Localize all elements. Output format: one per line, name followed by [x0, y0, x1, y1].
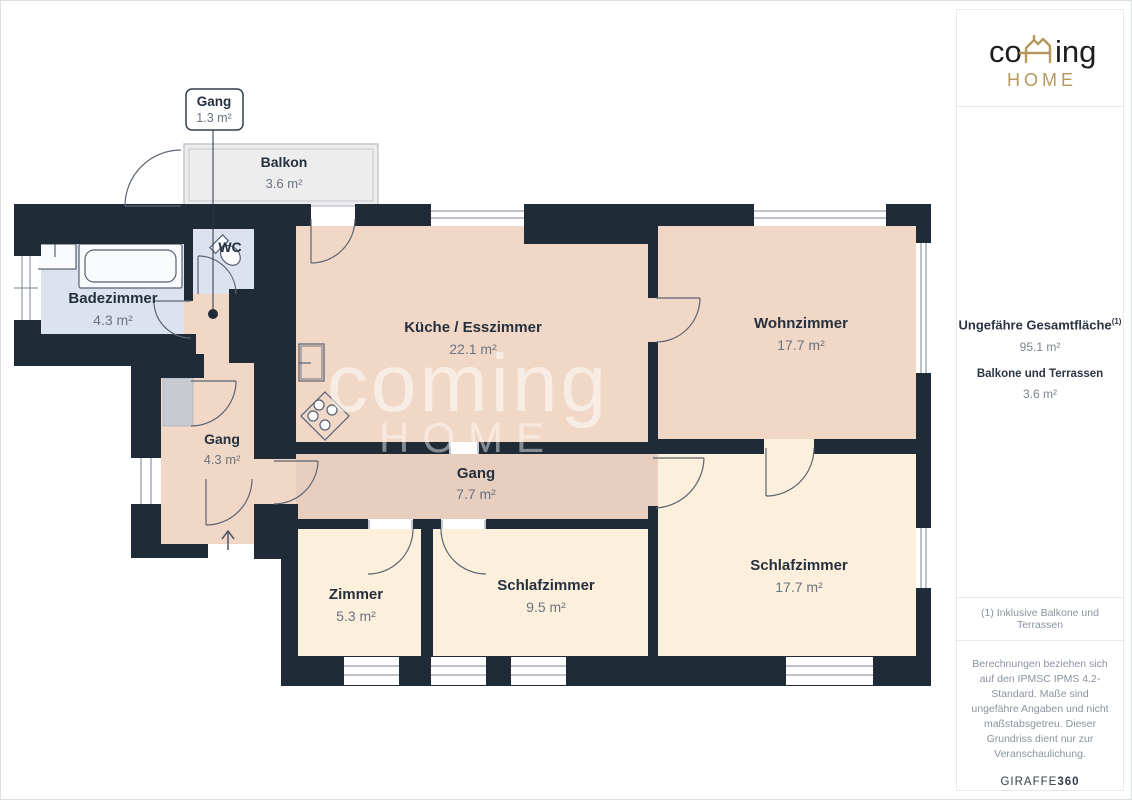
callout-dot — [208, 309, 218, 319]
gang13-label: Gang — [197, 94, 232, 109]
bathtub-icon — [79, 244, 182, 288]
coming-home-logo: co ing HOME — [965, 20, 1115, 96]
wohnzimmer-area: 17.7 m² — [777, 337, 825, 353]
door-gap-gang77-schlafzimmer — [648, 448, 658, 506]
logo-home-text: HOME — [1007, 70, 1077, 90]
door-gap-kueche-wohnzimmer — [648, 298, 658, 342]
floorplan-canvas: coming HOME Balkon 3.6 m² WC Badezimmer … — [0, 0, 1132, 800]
info-sidebar: co ing HOME Ungefähre Gesamtfläche(1) 95… — [956, 9, 1124, 791]
window-bottom-zimmer — [344, 657, 399, 685]
gang13-area: 1.3 m² — [196, 111, 231, 125]
wc-label: WC — [218, 239, 241, 255]
window-badezimmer — [14, 256, 38, 320]
disclaimer: Berechnungen beziehen sich auf den IPMSC… — [957, 641, 1123, 790]
footnote: (1) Inklusive Balkone und Terrassen — [957, 598, 1123, 641]
giraffe360-brand: GIRAFFE360 — [967, 774, 1113, 790]
kueche-area: 22.1 m² — [449, 341, 497, 357]
window-right-wohnzimmer — [916, 243, 931, 373]
floorplan: coming HOME Balkon 3.6 m² WC Badezimmer … — [1, 1, 956, 800]
zimmer-area: 5.3 m² — [336, 608, 376, 624]
area-summary: Ungefähre Gesamtfläche(1) 95.1 m² Balkon… — [957, 107, 1123, 598]
schlafzimmer177-label: Schlafzimmer — [750, 557, 848, 574]
window-bottom-schlafzimmer177 — [786, 657, 873, 685]
door-gap-badezimmer — [184, 301, 196, 338]
giraffe-text: GIRAFFE — [1000, 776, 1057, 788]
total-area-label: Ungefähre Gesamtfläche — [959, 318, 1112, 333]
badezimmer-label: Badezimmer — [68, 290, 157, 307]
balkon-label: Balkon — [261, 154, 308, 170]
door-gap-wohnzimmer-schlafzimmer — [764, 439, 814, 454]
window-bottom-schlafzimmer95-b — [511, 657, 566, 685]
door-balkon-exterior — [125, 150, 181, 206]
kueche-label: Küche / Esszimmer — [404, 319, 542, 336]
wohnzimmer-label: Wohnzimmer — [754, 315, 848, 332]
window-top-kueche — [431, 204, 524, 226]
total-area-value: 95.1 m² — [957, 340, 1123, 354]
disclaimer-text: Berechnungen beziehen sich auf den IPMSC… — [971, 658, 1108, 759]
zimmer-label: Zimmer — [329, 586, 383, 603]
gang43-area: 4.3 m² — [204, 452, 242, 467]
wardrobe-icon — [163, 378, 193, 426]
brand-logo: co ing HOME — [957, 10, 1123, 107]
window-top-wohnzimmer — [754, 204, 886, 226]
balkon-area: 3.6 m² — [266, 176, 304, 191]
schlafzimmer95-label: Schlafzimmer — [497, 577, 595, 594]
window-bottom-schlafzimmer95-a — [431, 657, 486, 685]
gang77-label: Gang — [457, 465, 495, 482]
gang43-label: Gang — [204, 431, 240, 447]
badezimmer-area: 4.3 m² — [93, 312, 133, 328]
total-area-heading: Ungefähre Gesamtfläche(1) — [957, 317, 1123, 333]
balconies-value: 3.6 m² — [957, 387, 1123, 401]
window-right-schlafzimmer — [916, 528, 931, 588]
watermark-home: HOME — [379, 414, 557, 461]
room-schlafzimmer177-floor — [658, 448, 916, 656]
room-wohnzimmer-floor — [658, 226, 916, 439]
logo-house-m-icon — [1020, 36, 1050, 62]
gang77-area: 7.7 m² — [456, 486, 496, 502]
schlafzimmer177-area: 17.7 m² — [775, 579, 823, 595]
total-area-footnote-marker: (1) — [1112, 317, 1122, 326]
window-gang43 — [132, 458, 160, 504]
logo-ing-text: ing — [1055, 34, 1096, 69]
schlafzimmer95-area: 9.5 m² — [526, 599, 566, 615]
balconies-label: Balkone und Terrassen — [957, 368, 1123, 380]
giraffe-360-text: 360 — [1057, 776, 1079, 788]
logo-co-text: co — [989, 34, 1022, 69]
